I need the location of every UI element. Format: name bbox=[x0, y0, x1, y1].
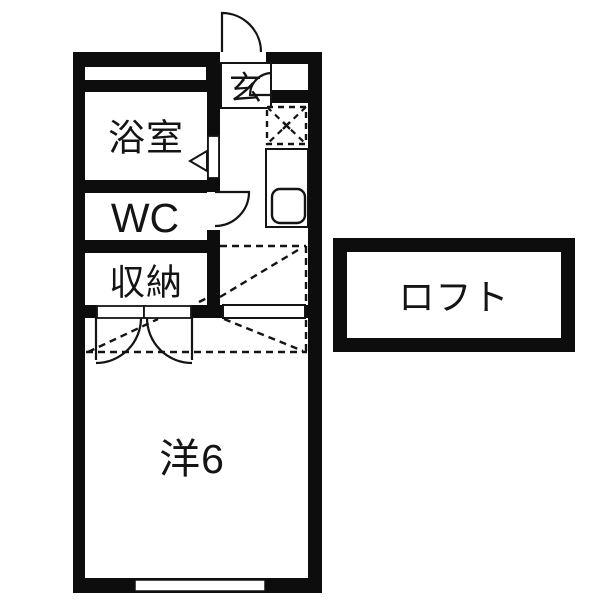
bathroom-window bbox=[85, 67, 206, 80]
main-room-window bbox=[135, 580, 265, 591]
floor-plan-drawing: 玄 浴室 WC 収納 洋6 ロフト bbox=[0, 0, 600, 600]
main-room-label: 洋6 bbox=[159, 436, 225, 482]
storage-label: 収納 bbox=[109, 262, 183, 303]
storage-door-panel-left bbox=[97, 306, 144, 318]
wc-doorway-gap bbox=[207, 192, 220, 230]
kitchen-window bbox=[272, 64, 308, 90]
bathroom-label: 浴室 bbox=[108, 118, 184, 159]
wall-wc-storage bbox=[85, 240, 220, 253]
wall-left bbox=[73, 52, 85, 593]
refrigerator-space-dashed-box bbox=[267, 107, 306, 144]
wall-right bbox=[308, 52, 322, 593]
wall-storage-sill-right bbox=[191, 305, 223, 318]
wall-top-right bbox=[266, 52, 322, 64]
loft-label: ロフト bbox=[398, 277, 509, 318]
kitchen-sink bbox=[272, 189, 305, 223]
corridor-room-opening bbox=[223, 305, 305, 318]
genkan-label: 玄 bbox=[229, 70, 263, 107]
storage-door-panel-right bbox=[144, 306, 191, 318]
floor-plan-canvas: 玄 浴室 WC 収納 洋6 ロフト bbox=[0, 0, 600, 600]
wall-genkan-kitchen bbox=[271, 90, 322, 103]
wall-storage-sill-left bbox=[85, 305, 97, 318]
wc-label: WC bbox=[111, 195, 179, 241]
bathroom-door-strip bbox=[208, 136, 219, 178]
wall-bath-wc bbox=[85, 180, 220, 193]
